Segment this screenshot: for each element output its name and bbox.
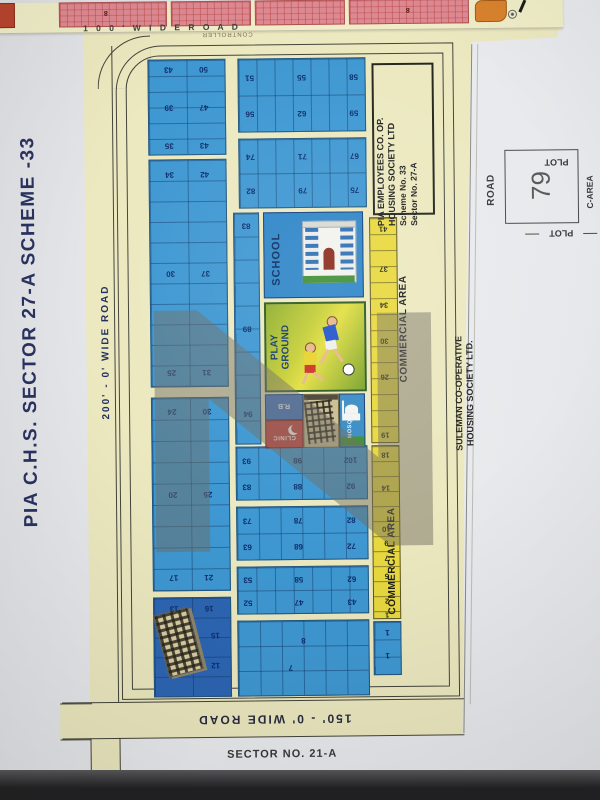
- plot-number: 68: [290, 542, 308, 550]
- commercial-plot-number: 19: [372, 431, 398, 439]
- plot-number: 82: [242, 186, 260, 194]
- plot-number: 47: [290, 597, 308, 605]
- plot-sketch-dash: [583, 233, 597, 234]
- commercial-area-label: COMMERCIAL AREA: [386, 496, 401, 626]
- plot-block-a1: 435039473543: [147, 59, 226, 156]
- plot-number: 25: [199, 490, 217, 498]
- plot-number: 1: [379, 651, 397, 659]
- plot-number: 7: [282, 663, 300, 671]
- plot-number: 55: [293, 73, 311, 81]
- commercial-strip-strip1: 413734302619: [369, 217, 399, 443]
- road-stub-bottom: [90, 738, 120, 774]
- mosque-label: MOSQUE: [347, 401, 355, 447]
- plot-sketch-plot-label: PLOT: [538, 157, 574, 167]
- plot-number: 16: [201, 604, 219, 612]
- plot-number: 67: [345, 151, 363, 159]
- plot-number: 59: [345, 108, 363, 116]
- corner-building-illustration: [153, 607, 204, 678]
- plot-number: 47: [195, 103, 213, 111]
- commercial-plot-number: 37: [371, 265, 397, 273]
- plot-number: 30: [198, 407, 216, 415]
- adjacent-plot-number: 8: [406, 6, 410, 13]
- plot-number: 1: [378, 628, 396, 636]
- plot-number: 63: [239, 542, 257, 550]
- plot-number: 31: [198, 368, 216, 376]
- plot-number: 78: [289, 516, 307, 524]
- school-label: SCHOOL: [270, 219, 287, 299]
- plot-number: 83: [238, 482, 256, 490]
- clinic-block: CLINIC: [265, 420, 303, 448]
- plot-number: 94: [239, 410, 257, 418]
- plot-number: 92: [342, 481, 360, 489]
- plot-number: 62: [343, 574, 361, 582]
- plot-number: 39: [160, 103, 178, 111]
- school-windows: [340, 227, 353, 269]
- plot-number: 71: [293, 152, 311, 160]
- bottom-sector-label: SECTOR NO. 21-A: [205, 747, 360, 761]
- rb-label: R.B: [266, 402, 302, 409]
- school-grass: [303, 275, 355, 283]
- plot-number: 12: [206, 660, 224, 668]
- playground-label-line1: PLAY: [269, 312, 281, 382]
- plot-number: 98: [289, 456, 307, 464]
- plot-block-mg3: 535862524743: [237, 565, 369, 614]
- plot-number: 56: [241, 109, 259, 117]
- plot-number: 15: [206, 631, 224, 639]
- plot-number: 89: [238, 324, 256, 332]
- shopping-building-illustration: [303, 394, 340, 448]
- plot-number: 102: [342, 455, 360, 463]
- mosque-block: MOSQUE: [339, 393, 366, 447]
- plot-number: 37: [197, 269, 215, 277]
- commercial-plot-number: 30: [371, 337, 397, 345]
- corner-plot: [475, 0, 507, 22]
- plot-number: 74: [242, 152, 260, 160]
- adjacent-plot-block: [0, 3, 15, 28]
- plot-number: 25: [162, 369, 180, 377]
- plot-block-bc2: 747167827975: [238, 137, 367, 208]
- commercial-plot-number: 14: [373, 484, 399, 492]
- plot-number: 58: [344, 72, 362, 80]
- adjacent-plot-block: 8: [349, 0, 469, 24]
- sector-number: Sector No. 27-A: [408, 76, 421, 226]
- top-road-secondary-label: CONTROLLER: [177, 30, 277, 37]
- plot-number: 20: [164, 490, 182, 498]
- plot-number: 43: [159, 66, 177, 74]
- plot-number: 83: [237, 221, 255, 229]
- plot-block-mg1: 9398102838892: [235, 445, 368, 500]
- plot-number: 21: [200, 572, 218, 580]
- plot-number: 30: [161, 269, 179, 277]
- table-surface: [0, 770, 600, 800]
- neighbor-society-line2: HOUSING SOCIETY LTD.: [464, 318, 477, 468]
- plot-number: 73: [239, 516, 257, 524]
- survey-circle-mark: [508, 10, 517, 19]
- plot-block-mg2: 737882636872: [236, 505, 369, 560]
- bottom-road-label: 150' - 0' WIDE ROAD: [184, 709, 364, 727]
- plot-number: 17: [165, 573, 183, 581]
- plan-sheet: 8 8 1 0 0 ' W I D E R O A D CONTROLLER P…: [0, 0, 600, 775]
- commercial-plot-number: 34: [371, 301, 397, 309]
- plot-block-mg4: 87: [237, 619, 370, 696]
- plot-sketch-road-label: ROAD: [486, 165, 499, 215]
- plot-sketch-dash: [525, 233, 539, 234]
- plot-sketch-carea-label: C-AREA: [585, 167, 596, 217]
- shop-roof: [304, 395, 338, 400]
- plot-number: 34: [160, 170, 178, 178]
- road-stub-left: [60, 703, 92, 740]
- playground-block: PLAY GROUND: [264, 301, 367, 392]
- commercial-plot-number: 18: [372, 451, 398, 459]
- commercial-plot-number: 26: [372, 373, 398, 381]
- rb-block: R.B: [265, 394, 303, 420]
- plot-number: 24: [163, 408, 181, 416]
- plot-number: 79: [294, 186, 312, 194]
- plot-number: 35: [160, 141, 178, 149]
- school-building-illustration: [302, 220, 357, 283]
- society-info-box: PIA EMPLOYEES CO. OP. HOUSING SOCIETY LT…: [371, 63, 435, 216]
- plot-number: 82: [343, 515, 361, 523]
- plot-number: 8: [294, 636, 312, 644]
- plot-number: 43: [343, 597, 361, 605]
- plot-sketch-plot-label: PLOT: [543, 228, 579, 238]
- plot-number: 51: [241, 73, 259, 81]
- plot-number: 50: [195, 65, 213, 73]
- plot-block-a4: 13161512: [153, 597, 232, 698]
- school-door: [323, 248, 334, 270]
- pen-tick-mark: [518, 0, 526, 13]
- crescent-icon: [291, 424, 300, 433]
- plot-number: 62: [293, 109, 311, 117]
- plot-block-b_strip: 838994: [233, 212, 261, 444]
- plot-number: 88: [289, 482, 307, 490]
- plot-number: 53: [239, 575, 257, 583]
- neighbor-society-label: SULEMAN CO-OPERATIVE HOUSING SOCIETY LTD…: [453, 318, 481, 468]
- plot-block-a3: 243020251721: [151, 397, 231, 592]
- plot-number: 93: [238, 456, 256, 464]
- adjacent-plot-number: 8: [104, 9, 108, 16]
- plot-number: 72: [343, 541, 361, 549]
- plot-number: 58: [290, 574, 308, 582]
- left-road-label: 200' - 0' WIDE ROAD: [100, 272, 116, 432]
- footballers-illustration: [290, 307, 363, 386]
- school-block: SCHOOL: [263, 211, 364, 298]
- site-plan-photo: 8 8 1 0 0 ' W I D E R O A D CONTROLLER P…: [0, 0, 600, 800]
- plot-number: 75: [345, 185, 363, 193]
- plot-block-bc1: 515558566259: [237, 57, 366, 132]
- plot-number: 42: [196, 169, 214, 177]
- clinic-label: CLINIC: [266, 434, 302, 440]
- page-title: PIA C.H.S. SECTOR 27-A SCHEME -33: [17, 102, 48, 562]
- commercial-area-label: COMMERCIAL AREA: [398, 264, 413, 394]
- plot-number: 52: [239, 598, 257, 606]
- society-info-text: PIA EMPLOYEES CO. OP. HOUSING SOCIETY LT…: [375, 76, 433, 227]
- plot-number: 13: [165, 604, 183, 612]
- shop-windows: [304, 399, 337, 444]
- plot-number: 43: [196, 140, 214, 148]
- school-windows: [305, 228, 318, 270]
- plot-block-rb1: 11: [373, 621, 402, 675]
- plot-block-a2: 344230372531: [148, 159, 228, 388]
